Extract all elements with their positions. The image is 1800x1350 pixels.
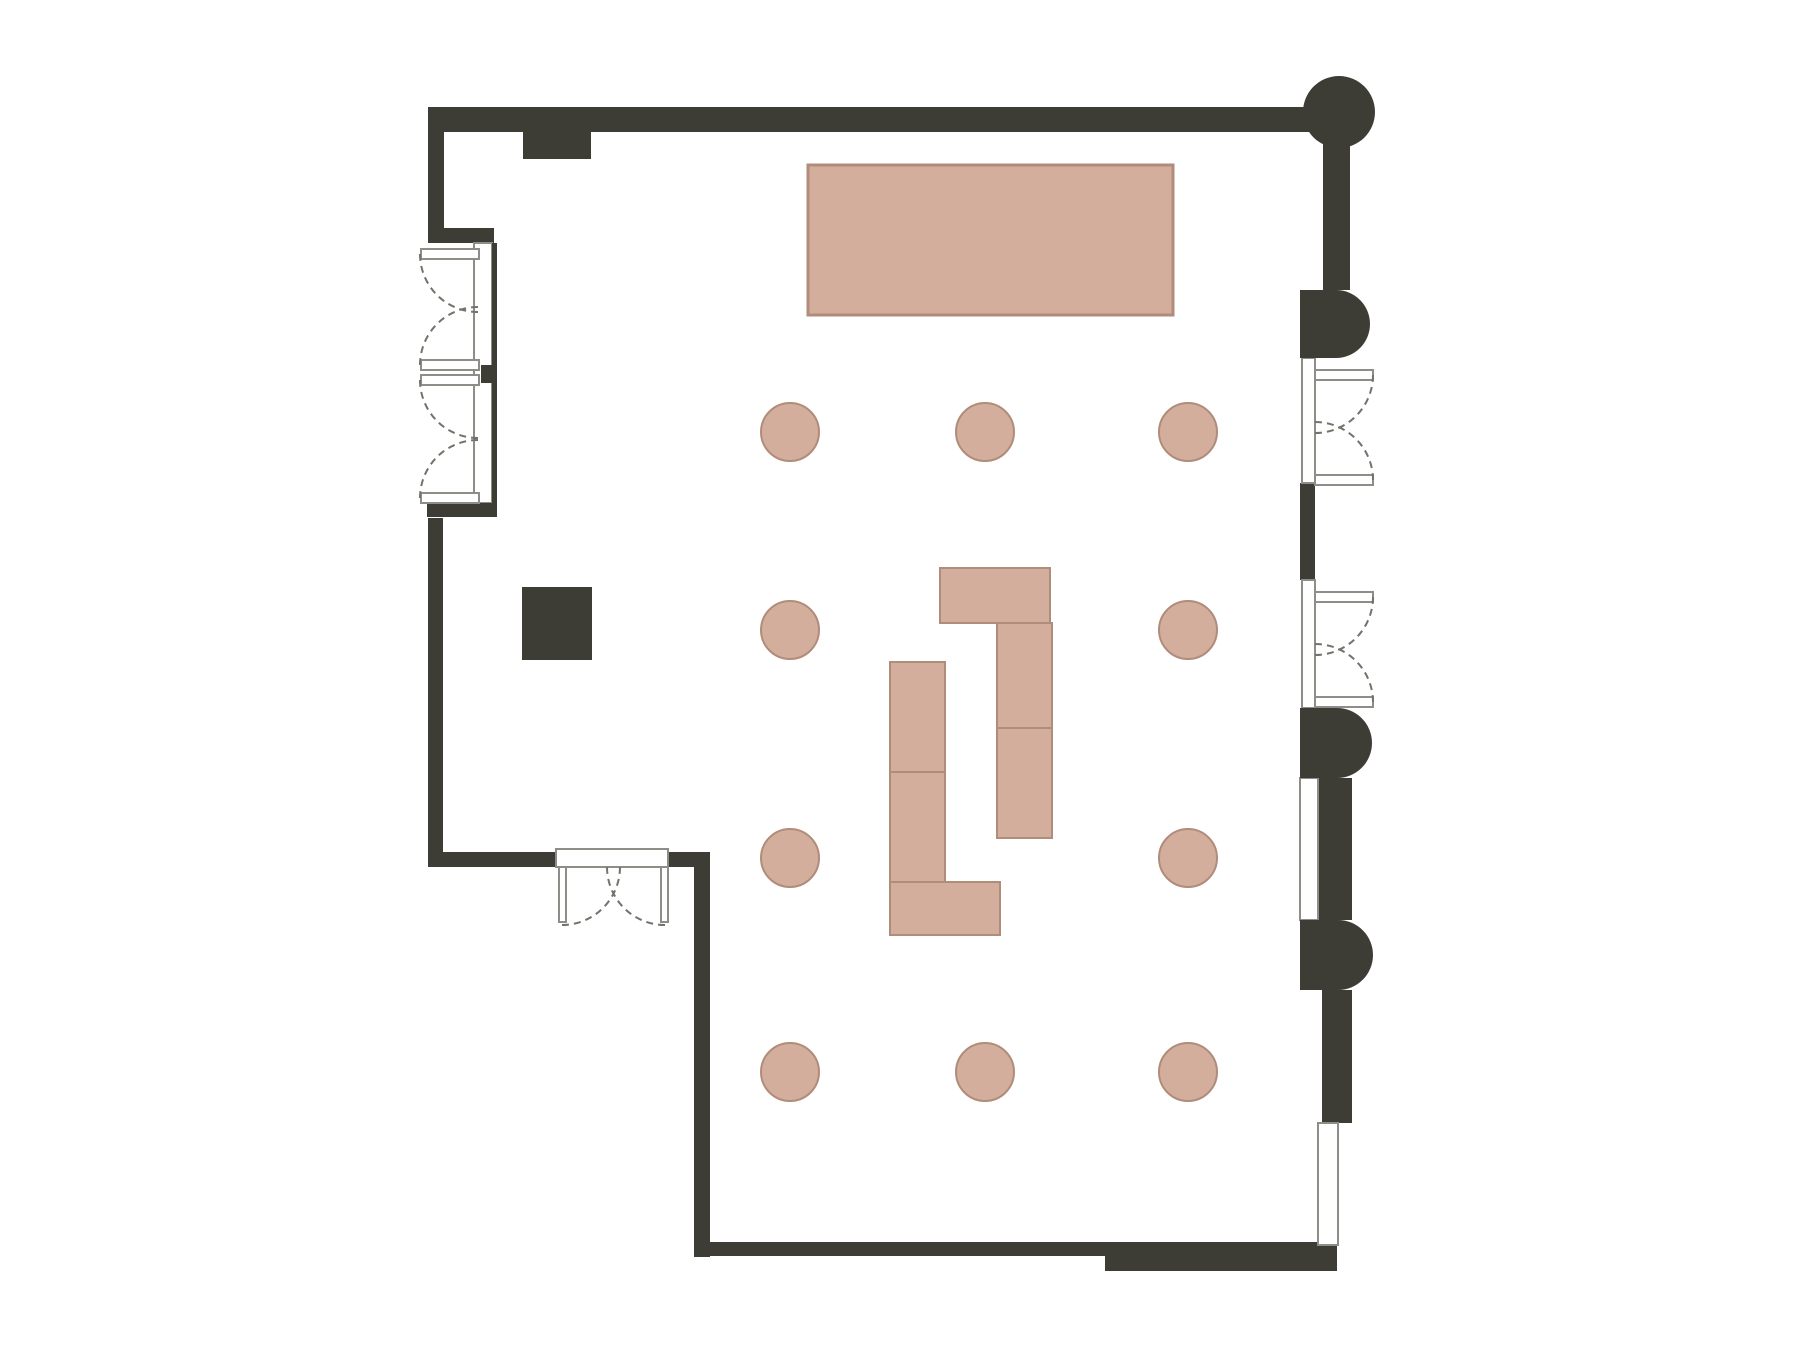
column-corner-round [1303,76,1375,148]
door-swing-right-2-top [1315,597,1373,655]
wall-left-upper [428,107,444,243]
door-leaf-left-a-top [421,249,479,259]
door-leaf-bottom-left [559,867,566,922]
stage-table [808,165,1173,315]
frame-right-door-2 [1302,580,1315,708]
table-1 [761,403,819,461]
door-leaf-right-2-top [1315,592,1373,602]
door-leaf-right-1-bottom [1315,475,1373,485]
table-8 [761,1043,819,1101]
floor-plan-page [0,0,1800,1350]
table-9 [956,1043,1014,1101]
window-bottom-right [1318,1123,1338,1245]
floor-plan-canvas [0,0,1800,1350]
wall-left-corner [428,228,494,243]
door-swing-bottom-left [562,867,620,925]
frame-bottom-door [556,849,668,867]
door-swing-left-b-top [420,380,478,438]
wall-right-mid [1318,778,1352,920]
door-swing-right-1-bottom [1315,422,1373,480]
door-leaf-right-1-top [1315,370,1373,380]
wall-top [428,107,1344,132]
wall-bottom-left-horizontal [428,852,560,867]
door-swing-right-2-bottom [1315,644,1373,702]
door-swing-left-a-top [420,254,478,312]
door-leaf-left-b-bottom [421,493,479,503]
door-leaf-right-2-bottom [1315,697,1373,707]
wall-bottom [694,1242,1337,1256]
door-swing-left-b-bottom [420,440,478,498]
column-right-1 [1300,290,1370,358]
buffet-left-bottom [890,882,1000,935]
table-2 [956,403,1014,461]
floor-plan-root [420,76,1375,1271]
table-7 [1159,829,1217,887]
wall-top-notch [523,132,591,159]
frame-right-door-1 [1302,358,1315,483]
wall-bottom-right-block [1105,1256,1337,1271]
door-leaf-left-a-bottom [421,360,479,370]
column-right-3 [1300,920,1373,990]
table-6 [761,829,819,887]
window-right-mid [1300,778,1318,920]
door-leaf-bottom-right [661,867,668,922]
table-3 [1159,403,1217,461]
wall-right-mullion [1300,483,1315,580]
wall-left-door-mullion [481,365,496,383]
equipment-square [522,587,592,660]
wall-lower-left-vertical [694,860,710,1257]
table-10 [1159,1043,1217,1101]
wall-left [428,518,443,867]
wall-left-bottom-band [427,503,497,517]
table-5 [1159,601,1217,659]
column-right-2 [1300,708,1372,778]
wall-right-low [1322,990,1352,1123]
door-swing-left-a-bottom [420,307,478,365]
buffet-right-vertical [997,623,1052,838]
door-swing-right-1-top [1315,375,1373,433]
door-swing-bottom-right [607,867,665,925]
door-leaf-left-b-top [421,375,479,385]
buffet-right-top [940,568,1050,623]
table-4 [761,601,819,659]
wall-right-upper [1323,130,1350,290]
